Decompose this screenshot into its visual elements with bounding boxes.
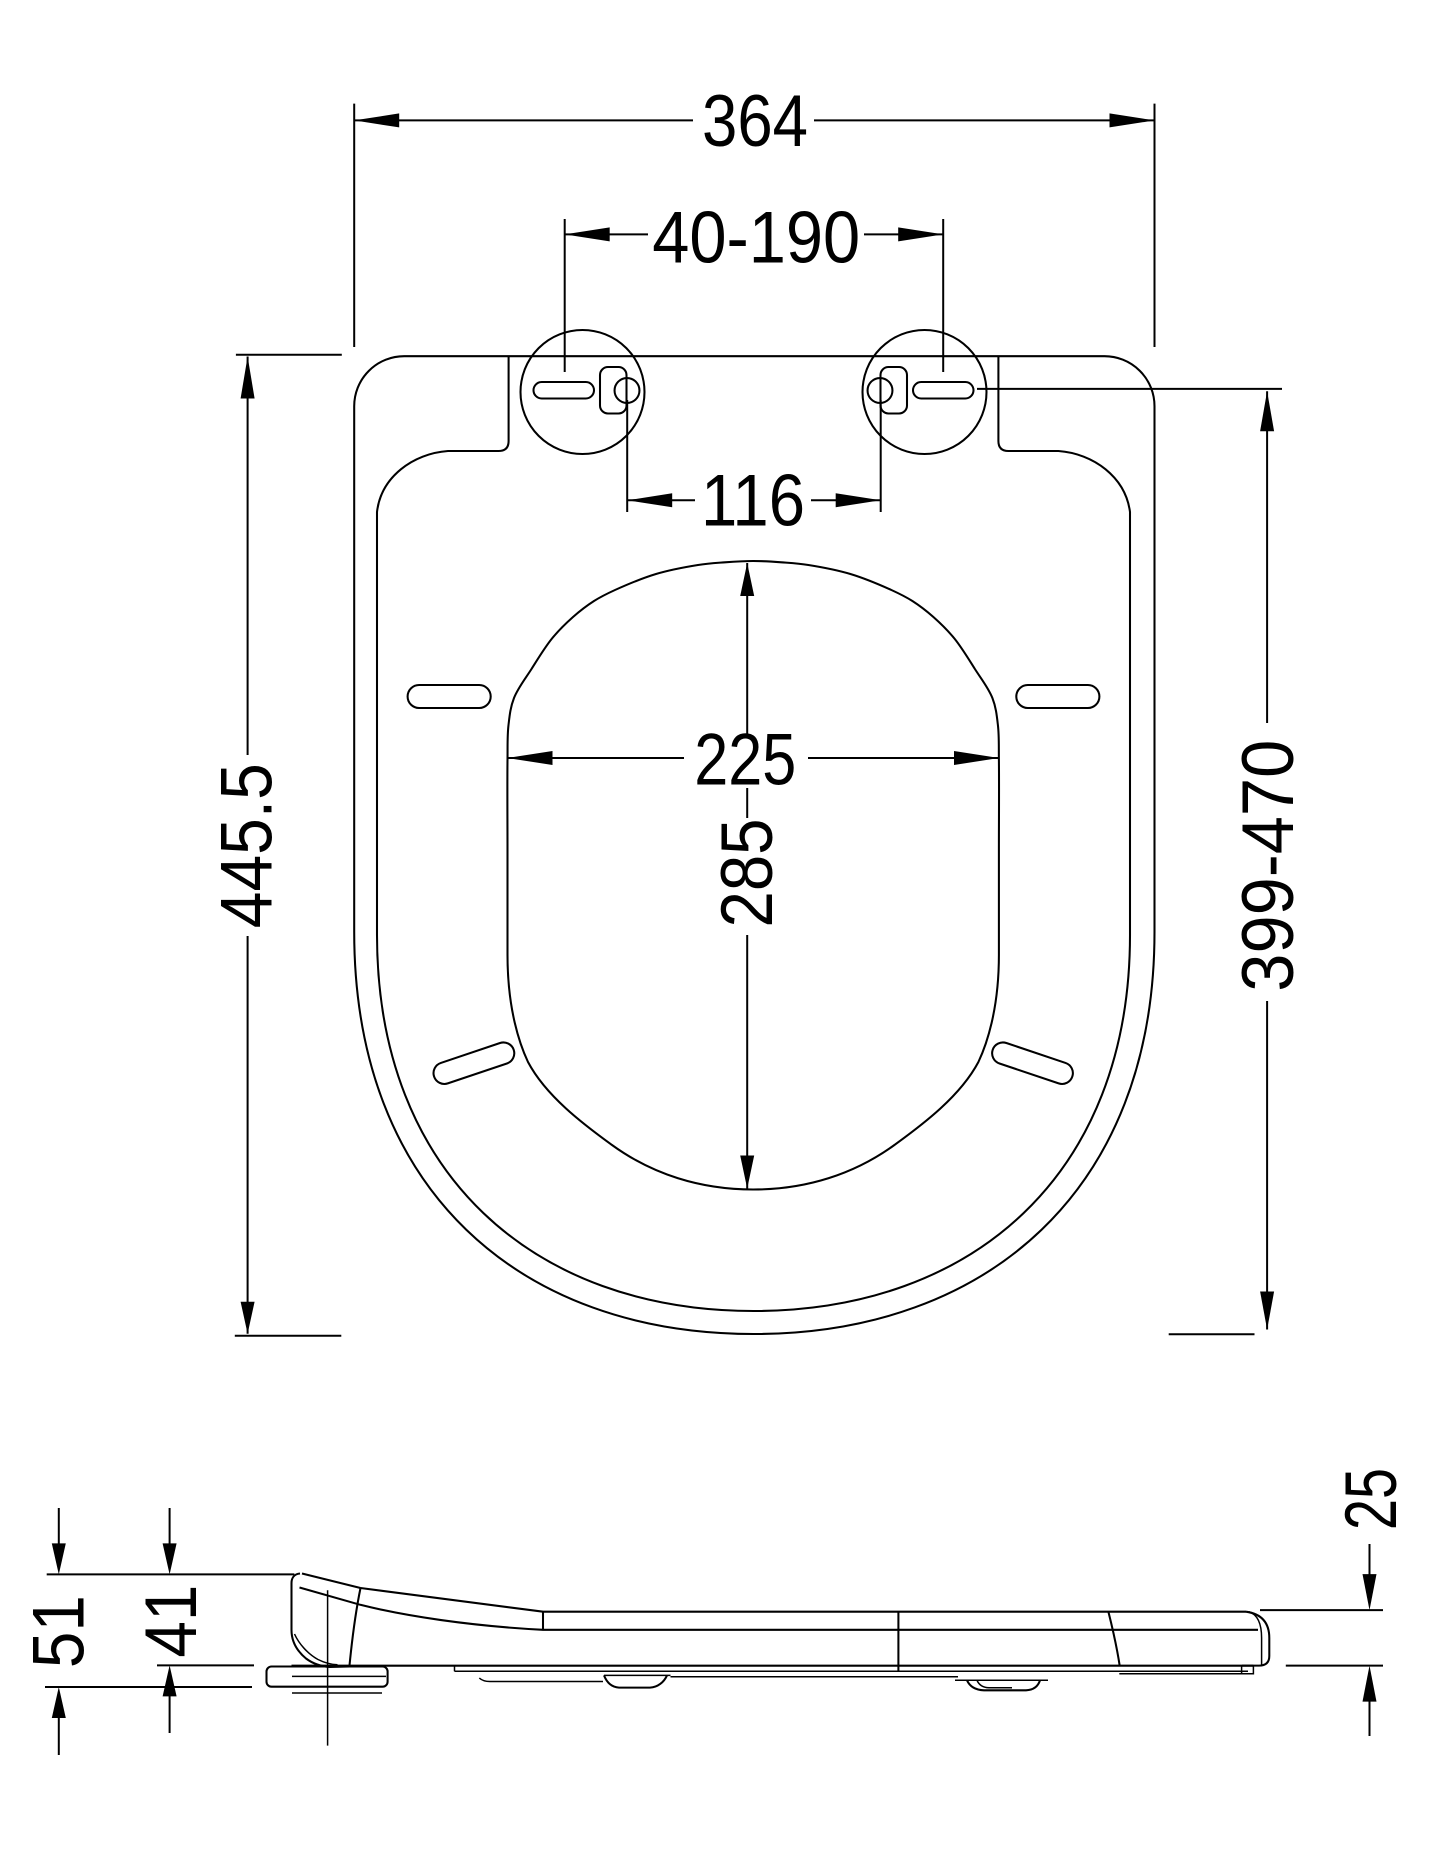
svg-text:25: 25	[1331, 1468, 1412, 1530]
svg-text:364: 364	[702, 81, 808, 162]
svg-text:116: 116	[701, 461, 805, 542]
svg-text:225: 225	[694, 720, 796, 801]
svg-text:445.5: 445.5	[206, 763, 287, 928]
svg-text:41: 41	[131, 1585, 212, 1658]
svg-text:399-470: 399-470	[1228, 740, 1309, 992]
svg-text:285: 285	[707, 819, 788, 928]
svg-text:51: 51	[19, 1595, 100, 1668]
svg-text:40-190: 40-190	[652, 197, 860, 278]
